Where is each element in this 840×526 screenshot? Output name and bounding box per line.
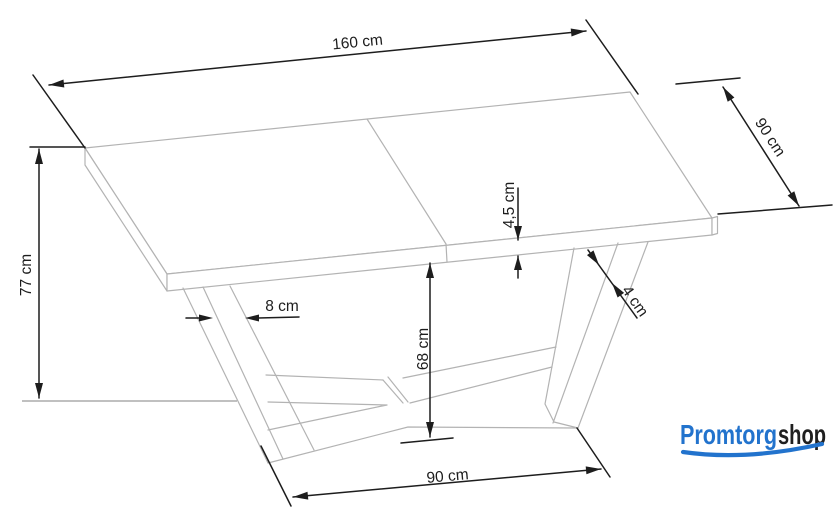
dim-clearance-height: 68 cm [401, 263, 453, 443]
promtorgshop-logo-graphic: Promtorg shop [676, 412, 838, 466]
arrowhead [199, 315, 213, 322]
arrowhead [293, 492, 308, 500]
base-stretcher-left-arm [266, 375, 387, 430]
arrowhead [571, 29, 586, 37]
dim-leg-width-label: 8 cm [265, 298, 299, 315]
dim-table-length-label: 160 cm [331, 32, 383, 54]
dim-leg-thickness-label: 4 cm [618, 283, 651, 320]
dim-top-thickness-label: 4,5 cm [501, 182, 518, 229]
arrowhead [426, 263, 434, 278]
base-floor-edge [268, 427, 578, 463]
base-stretcher-junction [383, 377, 408, 403]
arrowhead [514, 256, 522, 270]
dim-clearance-height-label: 68 cm [415, 328, 432, 370]
arrowhead [587, 250, 599, 265]
promtorgshop-logo: Promtorg shop [676, 412, 838, 466]
right-leg [545, 242, 648, 428]
dim-table-depth-label: 90 cm [751, 115, 788, 160]
table-outline [85, 92, 718, 463]
dim-table-depth: 90 cm [676, 78, 832, 214]
dim-table-depth-lines [676, 78, 832, 214]
dim-table-height: 77 cm [18, 147, 85, 398]
dim-table-height-lines [30, 147, 85, 398]
tabletop-right-edge-face [712, 217, 718, 236]
dim-table-height-label: 77 cm [18, 254, 35, 296]
arrowhead [586, 466, 601, 474]
logo-text-primary: Promtorg [680, 419, 777, 450]
dim-base-length-label: 90 cm [426, 466, 470, 487]
arrowhead [35, 149, 43, 164]
arrowhead [723, 87, 734, 102]
arrowhead [426, 422, 434, 437]
dimension-drawing-page: 160 cm 90 cm 77 cm 8 cm [0, 0, 840, 526]
arrowhead [788, 191, 799, 206]
tabletop-top-surface [85, 92, 712, 274]
arrowhead [49, 80, 64, 88]
arrowhead [35, 383, 43, 398]
